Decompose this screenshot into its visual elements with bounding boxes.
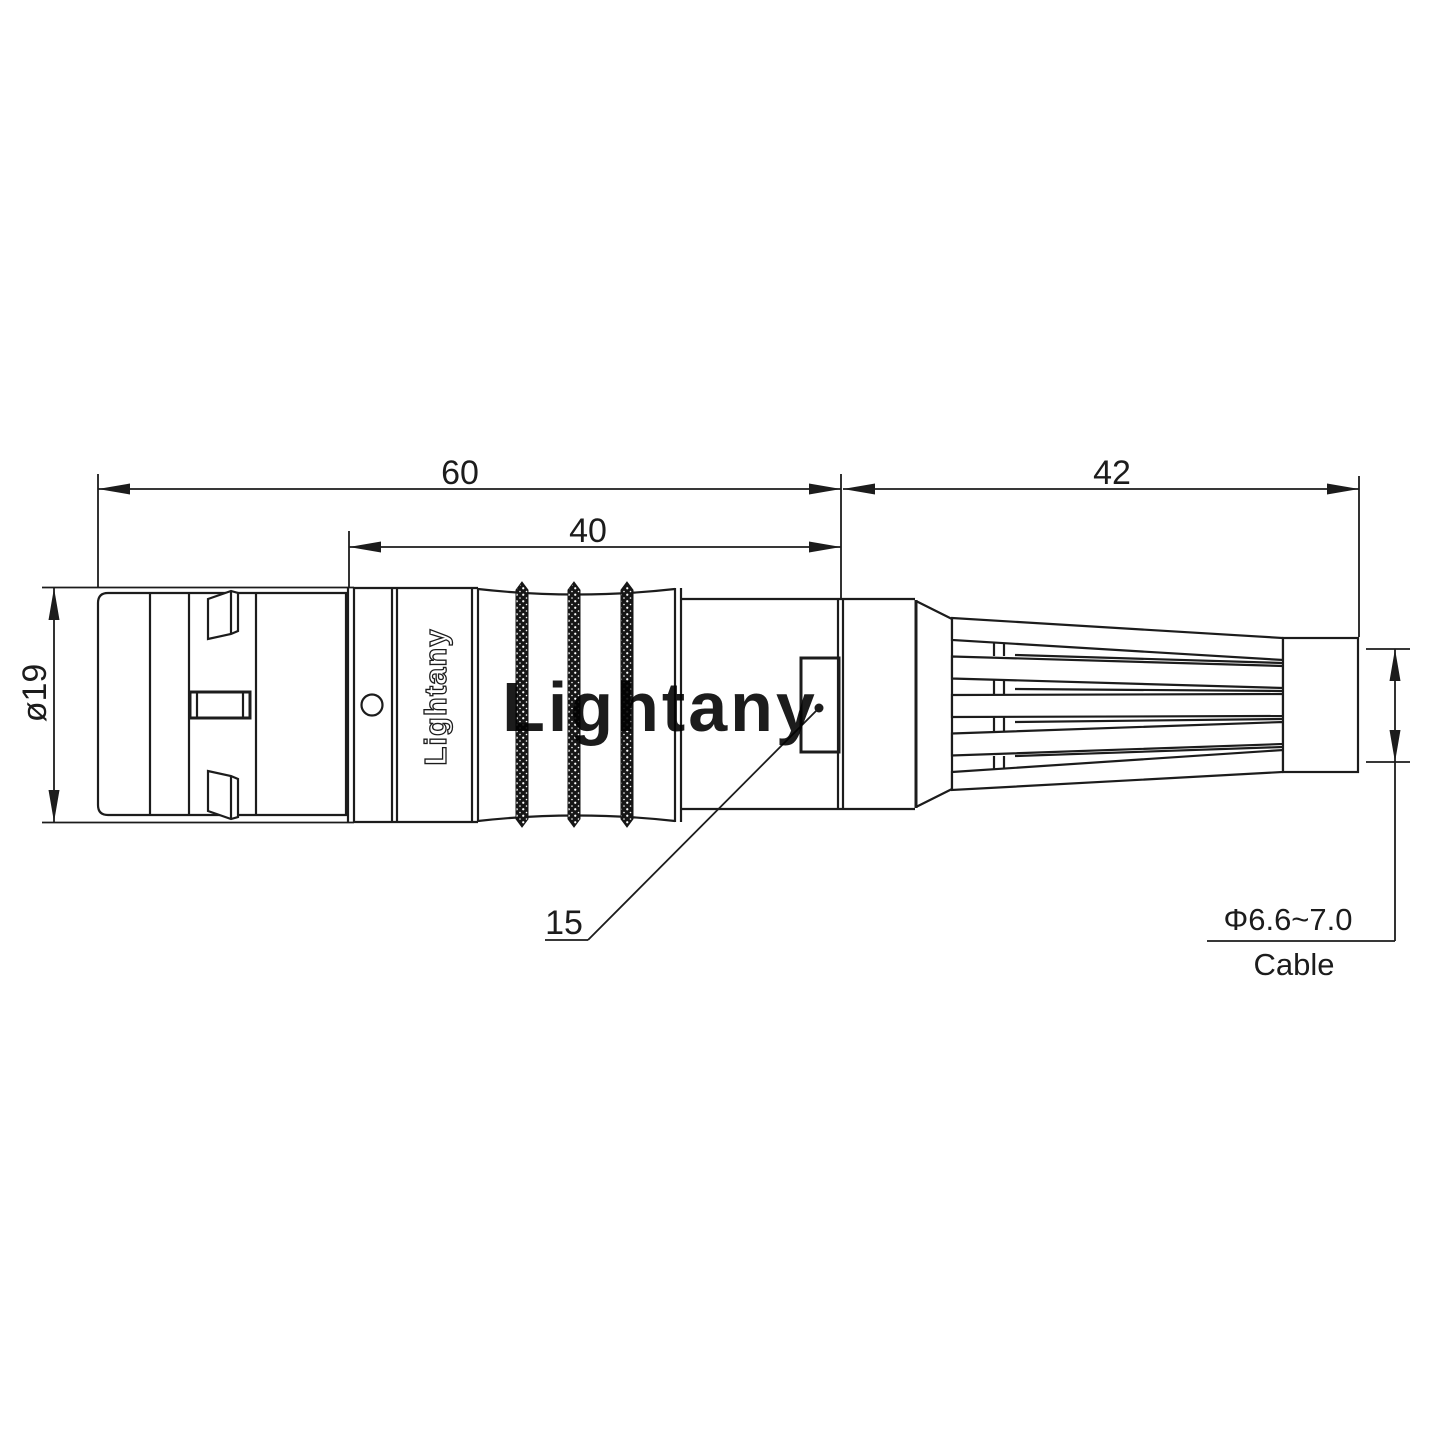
cable-diameter-label: Φ6.6~7.0 (1223, 902, 1352, 937)
connector-technical-drawing: 60 40 42 ø19 (0, 0, 1440, 1440)
dim-label-60: 60 (441, 454, 479, 492)
cable-label: Cable (1254, 947, 1335, 982)
dim-label-15: 15 (545, 904, 583, 942)
bayonet-clip-top (208, 591, 238, 639)
cable-exit-collar (1283, 638, 1358, 772)
watermark: Lightany (502, 668, 818, 746)
dim-label-dia19: ø19 (16, 664, 54, 723)
drawing-canvas: 60 40 42 ø19 (0, 0, 1440, 1440)
dim-label-40: 40 (569, 512, 607, 550)
boot-rib (952, 694, 1283, 717)
dim-label-42: 42 (1093, 454, 1131, 492)
bayonet-clip-bottom (208, 771, 238, 819)
brand-label: Lightany (418, 628, 453, 765)
